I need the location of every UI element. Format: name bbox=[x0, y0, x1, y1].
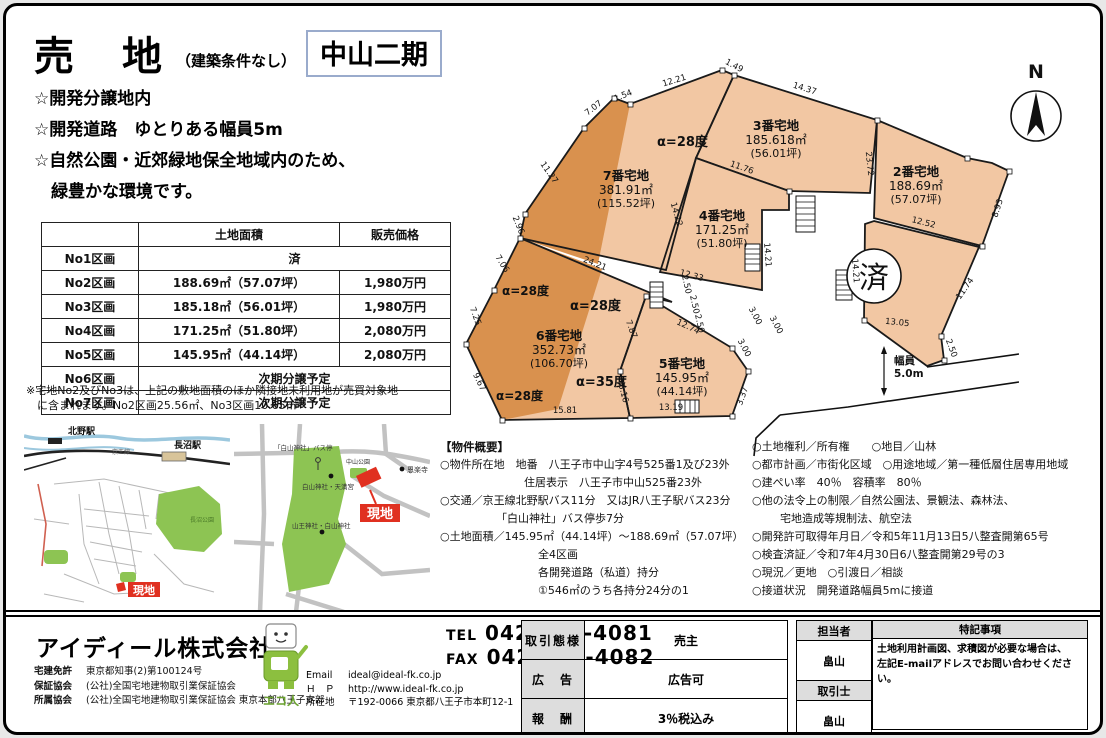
lot-no: No1区画 bbox=[42, 247, 139, 271]
contact-value: ideal@ideal-fk.co.jp bbox=[348, 670, 441, 681]
header-price: 販売価格 bbox=[340, 223, 451, 247]
angle-label: α=28度 bbox=[502, 283, 550, 298]
deal-value: 3％税込み bbox=[585, 699, 788, 736]
table-row: No4区画 171.25㎡（51.80坪） 2,080万円 bbox=[42, 319, 451, 343]
park-label: 中山公園 bbox=[346, 458, 370, 466]
contact-label: 所在地 bbox=[306, 696, 348, 710]
overview-line: ○接道状況 開発道路幅員5mに接道 bbox=[752, 582, 1096, 600]
parcel-6-tsubo: (106.70坪) bbox=[530, 357, 588, 370]
road-width-label-2: 5.0m bbox=[894, 368, 924, 380]
parcel-5-tsubo: (44.14坪) bbox=[656, 385, 707, 398]
shrine-label-2: 山王神社・白山神社 bbox=[292, 521, 351, 530]
station-label-naganuma: 長沼駅 bbox=[174, 439, 202, 451]
parcel-7-area: 381.91㎡ bbox=[599, 183, 653, 197]
edge-label: 3.00 bbox=[767, 314, 785, 335]
bus-stop-label: 「白山神社」バス停 bbox=[274, 443, 333, 452]
angle-label: α=28度 bbox=[657, 134, 709, 150]
temple-dot bbox=[400, 467, 405, 472]
edge-label: 3.00 bbox=[746, 305, 764, 326]
compass: N bbox=[1004, 58, 1068, 150]
north-needle-icon bbox=[1027, 92, 1045, 136]
table-row: No2区画 188.69㎡（57.07坪） 1,980万円 bbox=[42, 271, 451, 295]
parcel-2-area: 188.69㎡ bbox=[889, 179, 943, 193]
lot-no: No4区画 bbox=[42, 319, 139, 343]
overview-title: 【物件概要】 bbox=[440, 438, 752, 456]
sold-label: 済 bbox=[859, 261, 889, 296]
lot-price: 1,980万円 bbox=[340, 271, 451, 295]
staff-table: 担当者 畠山 取引士 畠山 bbox=[796, 620, 872, 735]
title-subnote: （建築条件なし） bbox=[176, 50, 296, 71]
footer-separator bbox=[6, 610, 1100, 612]
angle-label: α=28度 bbox=[496, 388, 544, 403]
overview-right-column: ○土地権利／所有権 ○地目／山林 ○都市計画／市街化区域 ○用途地域／第一種低層… bbox=[752, 438, 1096, 600]
temple-label: 恩楽寺 bbox=[407, 465, 428, 474]
site-label: 現地 bbox=[133, 583, 155, 597]
parcel-3-area: 185.618㎡ bbox=[745, 133, 807, 147]
remarks-body: 土地利用計画図、求積図が必要な場合は、 左記E-mailアドレスでお問い合わせく… bbox=[873, 639, 1087, 690]
parcel-2-name: 2番宅地 bbox=[893, 164, 940, 179]
page-title: 売 地 bbox=[34, 24, 166, 82]
overview-line: 「白山神社」バス停歩7分 bbox=[440, 510, 752, 528]
edge-label: 14.21 bbox=[761, 242, 773, 267]
rail-line-label: 京王線 bbox=[112, 448, 130, 456]
highlight-3: ☆自然公園・近郊緑地保全地域内のため、 bbox=[34, 146, 355, 177]
access-map-wide: 北野駅 長沼駅 京王線 長沼公園 現地 bbox=[24, 424, 230, 612]
parcel-4-area: 171.25㎡ bbox=[695, 223, 749, 237]
highlight-1: ☆開発分譲地内 bbox=[34, 84, 355, 115]
overview-line: 住居表示 八王子市中山525番23外 bbox=[440, 474, 752, 492]
contact-block: Emailideal@ideal-fk.co.jp Ｈ Ｐhttp://www.… bbox=[306, 669, 513, 710]
access-map-detail: 「白山神社」バス停 白山神社・天満宮 山王神社・白山神社 中山公園 恩楽寺 現地 bbox=[234, 424, 430, 612]
contact-label: Email bbox=[306, 669, 348, 683]
overview-line: ○他の法令上の制限／自然公園法、景観法、森林法、 bbox=[752, 492, 1096, 510]
company-name: アイディール株式会社 bbox=[36, 629, 273, 663]
parcel-6-name: 6番宅地 bbox=[536, 328, 583, 343]
overview-left-column: 【物件概要】 ○物件所在地 地番 八王子市中山字4号525番1及び23外 住居表… bbox=[440, 438, 752, 600]
parcel-4-tsubo: (51.80坪) bbox=[696, 237, 747, 250]
deal-terms-table: 取引態様売主 広 告広告可 報 酬3％税込み bbox=[521, 620, 788, 735]
lot-area: 188.69㎡（57.07坪） bbox=[139, 271, 340, 295]
edge-label: 7.25 bbox=[467, 306, 483, 327]
lot-no: No2区画 bbox=[42, 271, 139, 295]
table-row: No3区画 185.18㎡（56.01坪） 1,980万円 bbox=[42, 295, 451, 319]
license-label: 所属協会 bbox=[34, 694, 86, 709]
project-name-badge: 中山二期 bbox=[306, 30, 442, 77]
footer: アイディール株式会社 宅建免許東京都知事(2)第100124号 保証協会(公社)… bbox=[6, 615, 1100, 732]
shrine-forest-area bbox=[282, 446, 346, 592]
flyer-page: 売 地 （建築条件なし） 中山二期 ☆開発分譲地内☆開発道路 ゆとりある幅員5m… bbox=[3, 3, 1103, 735]
edge-label: 14.21 bbox=[849, 258, 861, 283]
staff-name: 畠山 bbox=[797, 701, 872, 736]
park-label: 長沼公園 bbox=[190, 516, 214, 524]
highlight-list: ☆開発分譲地内☆開発道路 ゆとりある幅員5m☆自然公園・近郊緑地保全地域内のため… bbox=[34, 84, 355, 208]
site-label: 現地 bbox=[367, 506, 393, 522]
overview-line: ○物件所在地 地番 八王子市中山字4号525番1及び23外 bbox=[440, 456, 752, 474]
tel-label: TEL bbox=[446, 628, 477, 644]
overview-line: 全4区画 bbox=[440, 546, 752, 564]
remarks-line: 左記E-mailアドレスでお問い合わせください。 bbox=[877, 657, 1083, 687]
parcel-4-name: 4番宅地 bbox=[699, 208, 746, 223]
fax-label: FAX bbox=[446, 652, 479, 668]
lot-area: 185.18㎡（56.01坪） bbox=[139, 295, 340, 319]
lot-area: 171.25㎡（51.80坪） bbox=[139, 319, 340, 343]
overview-line: ○現況／更地 ○引渡日／相談 bbox=[752, 564, 1096, 582]
header-blank bbox=[42, 223, 139, 247]
mascot-head bbox=[266, 624, 296, 648]
overview-line: 宅地造成等規制法、航空法 bbox=[752, 510, 1096, 528]
parcel-6-area: 352.73㎡ bbox=[532, 343, 586, 357]
overview-line: ○検査済証／令和7年4月30日6八整査開第29号の3 bbox=[752, 546, 1096, 564]
edge-label: 13.19 bbox=[659, 403, 683, 413]
lot-no: No5区画 bbox=[42, 343, 139, 367]
parcel-5-area: 145.95㎡ bbox=[655, 371, 709, 385]
mascot-arm bbox=[298, 647, 306, 657]
license-label: 保証協会 bbox=[34, 680, 86, 695]
staff-name: 畠山 bbox=[797, 641, 872, 681]
table-row: No1区画 済 bbox=[42, 247, 451, 271]
overview-line: ○開発許可取得年月日／令和5年11月13日5八整査開第65号 bbox=[752, 528, 1096, 546]
staff-header: 担当者 bbox=[797, 621, 872, 641]
parcel-7-name: 7番宅地 bbox=[603, 168, 650, 183]
header: 売 地 （建築条件なし） 中山二期 bbox=[34, 24, 442, 82]
edge-label: 2.50 bbox=[687, 294, 701, 315]
contact-value: 〒192-0066 東京都八王子市本町12-1 bbox=[348, 697, 513, 708]
angle-label: α=28度 bbox=[570, 298, 622, 314]
site-marker bbox=[116, 582, 126, 592]
eco-mascot-logo: エコ人 bbox=[252, 621, 310, 713]
highlight-3b: 緑豊かな環境です。 bbox=[34, 177, 355, 208]
road-width-label-1: 幅員 bbox=[894, 354, 915, 367]
deal-value: 売主 bbox=[585, 621, 788, 660]
edge-label: 2.50 bbox=[943, 338, 959, 359]
parcel-7-tsubo: (115.52坪) bbox=[597, 197, 655, 210]
deal-value: 広告可 bbox=[585, 660, 788, 699]
license-value: 東京都知事(2)第100124号 bbox=[86, 666, 202, 677]
contact-value: http://www.ideal-fk.co.jp bbox=[348, 684, 463, 695]
overview-line: ○建ぺい率 40％ 容積率 80％ bbox=[752, 474, 1096, 492]
contact-label: Ｈ Ｐ bbox=[306, 683, 348, 697]
remarks-header: 特記事項 bbox=[873, 621, 1087, 639]
remarks-box: 特記事項 土地利用計画図、求積図が必要な場合は、 左記E-mailアドレスでお問… bbox=[872, 620, 1088, 730]
footnote: ※宅地No2及びNo3は、上記の敷地面積のほか隣接地未利用地が売買対象地 に含ま… bbox=[26, 383, 398, 413]
lot-price: 2,080万円 bbox=[340, 343, 451, 367]
lot-price: 2,080万円 bbox=[340, 319, 451, 343]
station-building-2 bbox=[48, 438, 62, 444]
lot-price: 1,980万円 bbox=[340, 295, 451, 319]
station-label-kitano: 北野駅 bbox=[68, 425, 96, 437]
contact-row: Ｈ Ｐhttp://www.ideal-fk.co.jp bbox=[306, 683, 513, 697]
remarks-line: 土地利用計画図、求積図が必要な場合は、 bbox=[877, 642, 1083, 657]
compass-n-label: N bbox=[1028, 61, 1044, 83]
overview-line: 各開発道路（私道）持分 bbox=[440, 564, 752, 582]
parcel-2-tsubo: (57.07坪) bbox=[890, 193, 941, 206]
deal-label: 報 酬 bbox=[522, 699, 585, 736]
highlight-2: ☆開発道路 ゆとりある幅員5m bbox=[34, 115, 355, 146]
overview-line: ○都市計画／市街化区域 ○用途地域／第一種低層住居専用地域 bbox=[752, 456, 1096, 474]
lot-no: No3区画 bbox=[42, 295, 139, 319]
shrine-label-1: 白山神社・天満宮 bbox=[302, 482, 354, 491]
overview-line: ○土地面積／145.95㎡（44.14坪）～188.69㎡（57.07坪） bbox=[440, 528, 752, 546]
parcel-3-tsubo: (56.01坪) bbox=[750, 147, 801, 160]
table-header-row: 土地面積 販売価格 bbox=[42, 223, 451, 247]
footnote-line2: に含まれます。No2区画25.56㎡、No3区画10.65㎡ bbox=[26, 398, 398, 413]
deal-label: 広 告 bbox=[522, 660, 585, 699]
license-label: 宅建免許 bbox=[34, 665, 86, 680]
parcel-3-name: 3番宅地 bbox=[753, 118, 800, 133]
land-plot-diagram: 済 幅員 5.0m 7番宅地 381.91㎡ (115.52坪) 3番宅地 18… bbox=[444, 58, 1019, 458]
park-area-small-2 bbox=[120, 572, 136, 582]
footnote-line1: ※宅地No2及びNo3は、上記の敷地面積のほか隣接地未利用地が売買対象地 bbox=[26, 383, 398, 398]
railway-branch bbox=[24, 458, 66, 470]
header-area: 土地面積 bbox=[139, 223, 340, 247]
shrine-dot bbox=[329, 474, 334, 479]
staff-header: 取引士 bbox=[797, 681, 872, 701]
edge-label: 15.81 bbox=[553, 406, 577, 416]
lot-area: 145.95㎡（44.14坪） bbox=[139, 343, 340, 367]
overview-line: ○土地権利／所有権 ○地目／山林 bbox=[752, 438, 1096, 456]
table-row: No5区画 145.95㎡（44.14坪） 2,080万円 bbox=[42, 343, 451, 367]
parcel-5-name: 5番宅地 bbox=[659, 356, 706, 371]
station-building bbox=[162, 452, 186, 461]
contact-row: Emailideal@ideal-fk.co.jp bbox=[306, 669, 513, 683]
deal-label: 取引態様 bbox=[522, 621, 585, 660]
license-value: (公社)全国宅地建物取引業保証協会 bbox=[86, 681, 236, 692]
park-area-small bbox=[44, 550, 68, 564]
mascot-label: エコ人 bbox=[263, 693, 300, 708]
lot-status: 済 bbox=[139, 247, 451, 271]
overview-line: ①546㎡のうち各持分24分の1 bbox=[440, 582, 752, 600]
overview-line: ○交通／京王線北野駅バス11分 又はJR八王子駅バス23分 bbox=[440, 492, 752, 510]
contact-row: 所在地〒192-0066 東京都八王子市本町12-1 bbox=[306, 696, 513, 710]
shrine-dot-2 bbox=[320, 530, 325, 535]
